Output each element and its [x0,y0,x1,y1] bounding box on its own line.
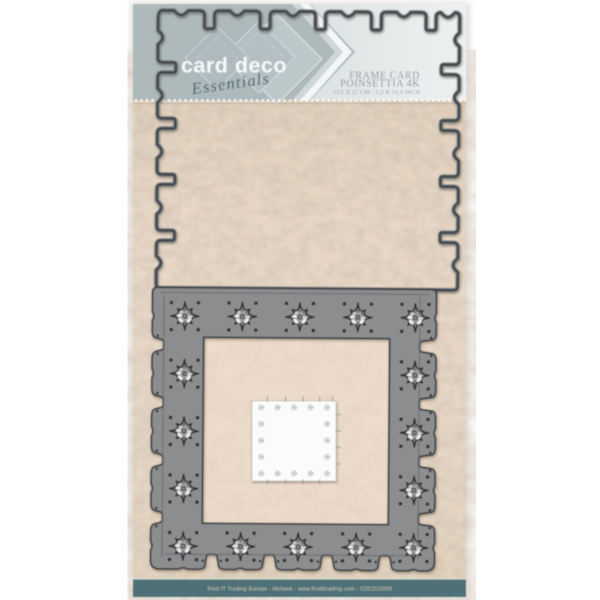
svg-text:POINSETTIA 4K: POINSETTIA 4K [340,79,420,90]
svg-text:Find IT Trading Europe - Holla: Find IT Trading Europe - Holland - www.f… [208,587,393,593]
svg-text:13,5 X 27 CM - 5,3 X 10,4 INCH: 13,5 X 27 CM - 5,3 X 10,4 INCH [333,90,421,96]
